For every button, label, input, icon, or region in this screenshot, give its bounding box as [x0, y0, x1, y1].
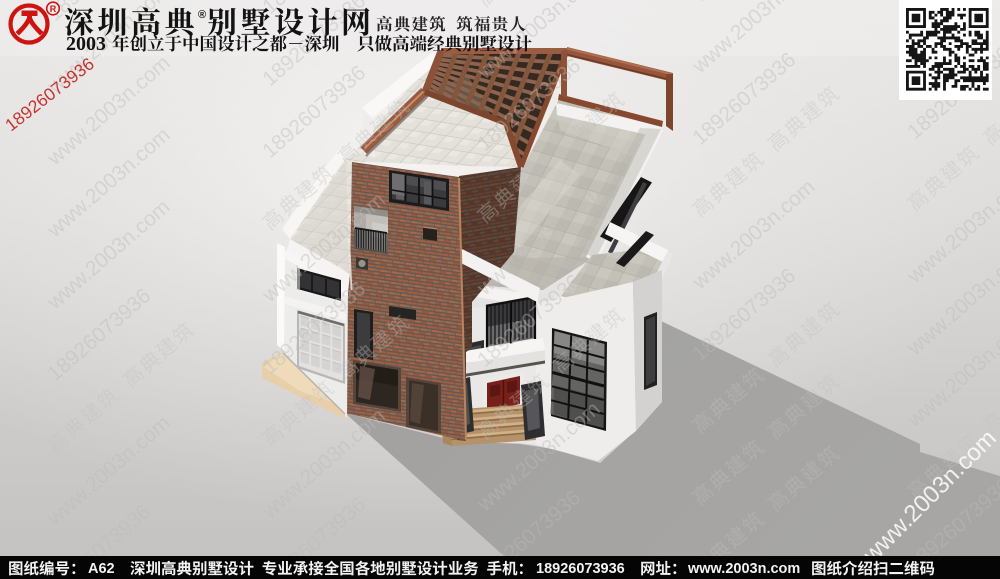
- svg-text:R: R: [50, 4, 57, 14]
- svg-text:®: ®: [198, 9, 206, 21]
- svg-text:A62: A62: [88, 561, 115, 577]
- svg-text:18926073936: 18926073936: [536, 561, 625, 577]
- svg-text:2003: 2003: [66, 33, 106, 55]
- svg-text:www.2003n.com: www.2003n.com: [687, 561, 800, 577]
